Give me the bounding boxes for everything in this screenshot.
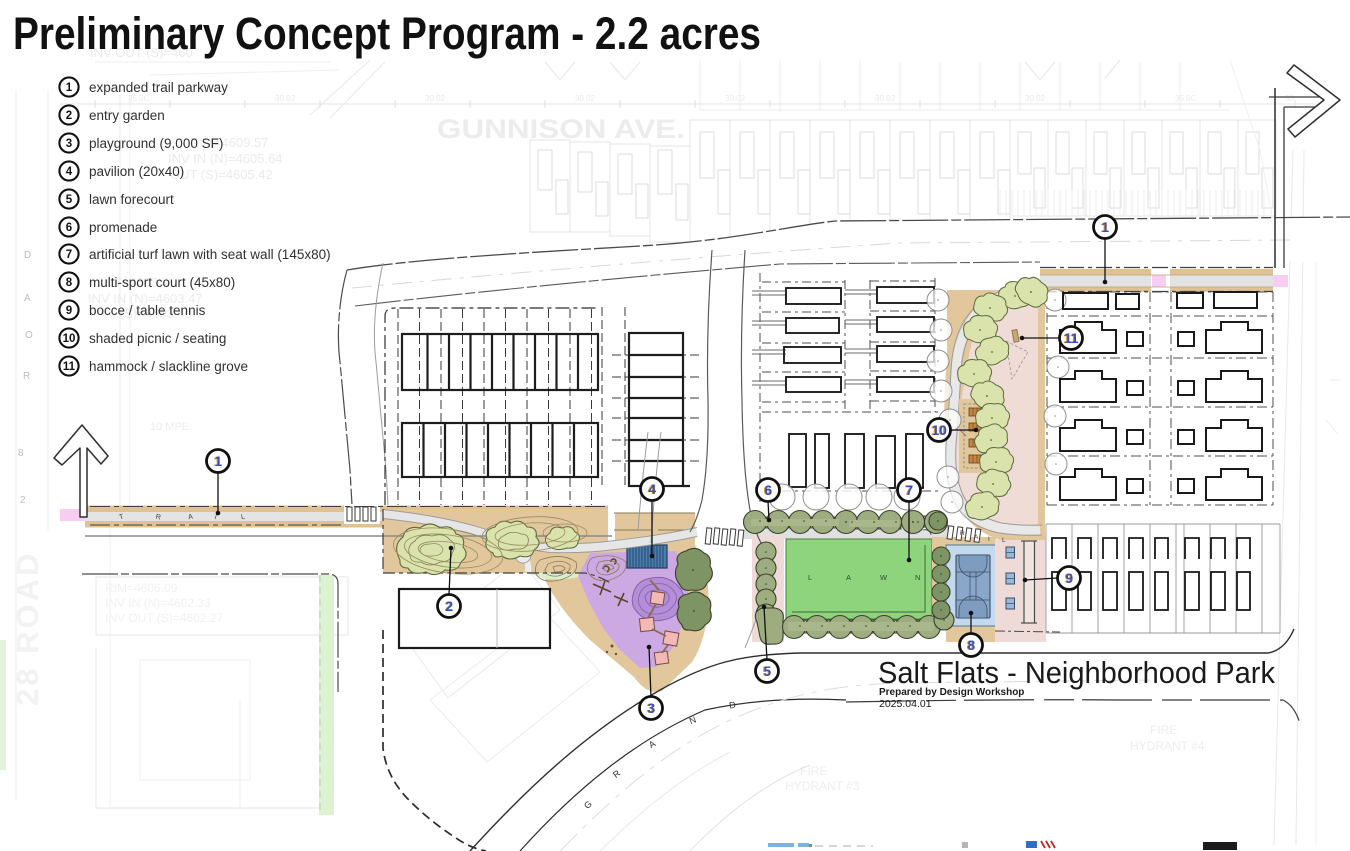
svg-text:2025.04.01: 2025.04.01 <box>879 698 932 710</box>
svg-text:D: D <box>24 250 31 261</box>
svg-text:3: 3 <box>648 701 656 716</box>
svg-text:11: 11 <box>63 361 76 373</box>
svg-text:2: 2 <box>20 495 26 506</box>
svg-text:7: 7 <box>906 483 914 498</box>
svg-text:2: 2 <box>446 599 454 614</box>
svg-text:INV OUT (S)=4602.27: INV OUT (S)=4602.27 <box>105 611 223 625</box>
svg-text:L: L <box>808 573 812 582</box>
svg-text:W: W <box>880 573 888 582</box>
svg-text:11: 11 <box>1064 331 1079 346</box>
svg-text:35.0C: 35.0C <box>1175 94 1197 103</box>
svg-text:2: 2 <box>66 110 72 122</box>
svg-text:5: 5 <box>66 194 73 206</box>
svg-text:GUNNISON AVE.: GUNNISON AVE. <box>437 114 685 144</box>
svg-text:A: A <box>24 293 31 304</box>
svg-text:8: 8 <box>66 277 73 289</box>
svg-text:L: L <box>1002 537 1006 544</box>
svg-text:OUT (S)=4605.42: OUT (S)=4605.42 <box>170 167 273 182</box>
svg-text:6: 6 <box>66 222 72 234</box>
svg-text:5: 5 <box>764 664 772 679</box>
svg-text:30.02: 30.02 <box>725 94 746 103</box>
svg-text:9: 9 <box>1066 571 1074 586</box>
svg-text:multi-sport court (45x80): multi-sport court (45x80) <box>89 275 235 290</box>
svg-text:N: N <box>915 573 920 582</box>
svg-text:1: 1 <box>66 82 73 94</box>
svg-text:10 MPE: 10 MPE <box>150 421 189 433</box>
svg-text:entry garden: entry garden <box>89 108 165 123</box>
svg-text:7: 7 <box>66 249 72 261</box>
svg-text:R: R <box>960 530 965 537</box>
svg-text:30.02: 30.02 <box>1025 94 1046 103</box>
svg-text:3: 3 <box>66 138 72 150</box>
svg-text:4: 4 <box>649 482 657 497</box>
svg-text:bocce / table tennis: bocce / table tennis <box>89 303 206 318</box>
svg-text:INV IN (N)=4602.33: INV IN (N)=4602.33 <box>105 596 211 610</box>
svg-text:promenade: promenade <box>89 220 157 235</box>
svg-text:playground (9,000 SF): playground (9,000 SF) <box>89 136 223 151</box>
svg-text:artificial turf lawn with seat: artificial turf lawn with seat wall (145… <box>89 247 331 262</box>
svg-text:30.02: 30.02 <box>425 94 446 103</box>
svg-text:RIM=4606.09: RIM=4606.09 <box>105 581 178 595</box>
svg-text:HYDRANT #3: HYDRANT #3 <box>785 779 860 793</box>
svg-text:shaded picnic / seating: shaded picnic / seating <box>89 331 226 346</box>
svg-text:28 ROAD: 28 ROAD <box>10 551 45 706</box>
svg-text:30.02: 30.02 <box>875 94 896 103</box>
svg-text:A: A <box>846 573 851 582</box>
svg-text:Prepared by Design Workshop: Prepared by Design Workshop <box>879 687 1024 698</box>
svg-text:pavilion (20x40): pavilion (20x40) <box>89 164 184 179</box>
svg-text:30.02: 30.02 <box>575 94 596 103</box>
svg-text:1: 1 <box>1102 220 1110 235</box>
svg-text:1: 1 <box>215 454 223 469</box>
svg-text:10: 10 <box>932 423 947 438</box>
svg-text:HYDRANT #4: HYDRANT #4 <box>1130 739 1205 753</box>
svg-text:A: A <box>974 534 979 541</box>
svg-text:10: 10 <box>63 333 76 345</box>
svg-text:R: R <box>23 371 30 382</box>
svg-text:O: O <box>25 330 33 341</box>
svg-text:9: 9 <box>66 305 72 317</box>
svg-text:lawn forecourt: lawn forecourt <box>89 192 174 207</box>
svg-text:30.02: 30.02 <box>275 94 296 103</box>
svg-text:Preliminary Concept Program -: Preliminary Concept Program - 2.2 acres <box>13 8 761 59</box>
svg-text:FIRE: FIRE <box>1150 723 1177 737</box>
svg-text:8: 8 <box>18 448 24 459</box>
svg-text:4: 4 <box>66 166 73 178</box>
svg-text:I: I <box>988 536 990 543</box>
svg-text:expanded trail parkway: expanded trail parkway <box>89 80 228 95</box>
svg-text:INV IN (N)=4605.64: INV IN (N)=4605.64 <box>168 151 283 166</box>
svg-text:hammock / slackline grove: hammock / slackline grove <box>89 359 248 374</box>
svg-text:6: 6 <box>765 483 773 498</box>
svg-text:8: 8 <box>968 638 976 653</box>
svg-text:Salt Flats - Neighborhood Park: Salt Flats - Neighborhood Park <box>878 656 1276 690</box>
svg-text:FIRE: FIRE <box>800 764 827 778</box>
svg-text:30: 30 <box>1285 94 1294 103</box>
svg-text:35.0C: 35.0C <box>128 94 150 103</box>
